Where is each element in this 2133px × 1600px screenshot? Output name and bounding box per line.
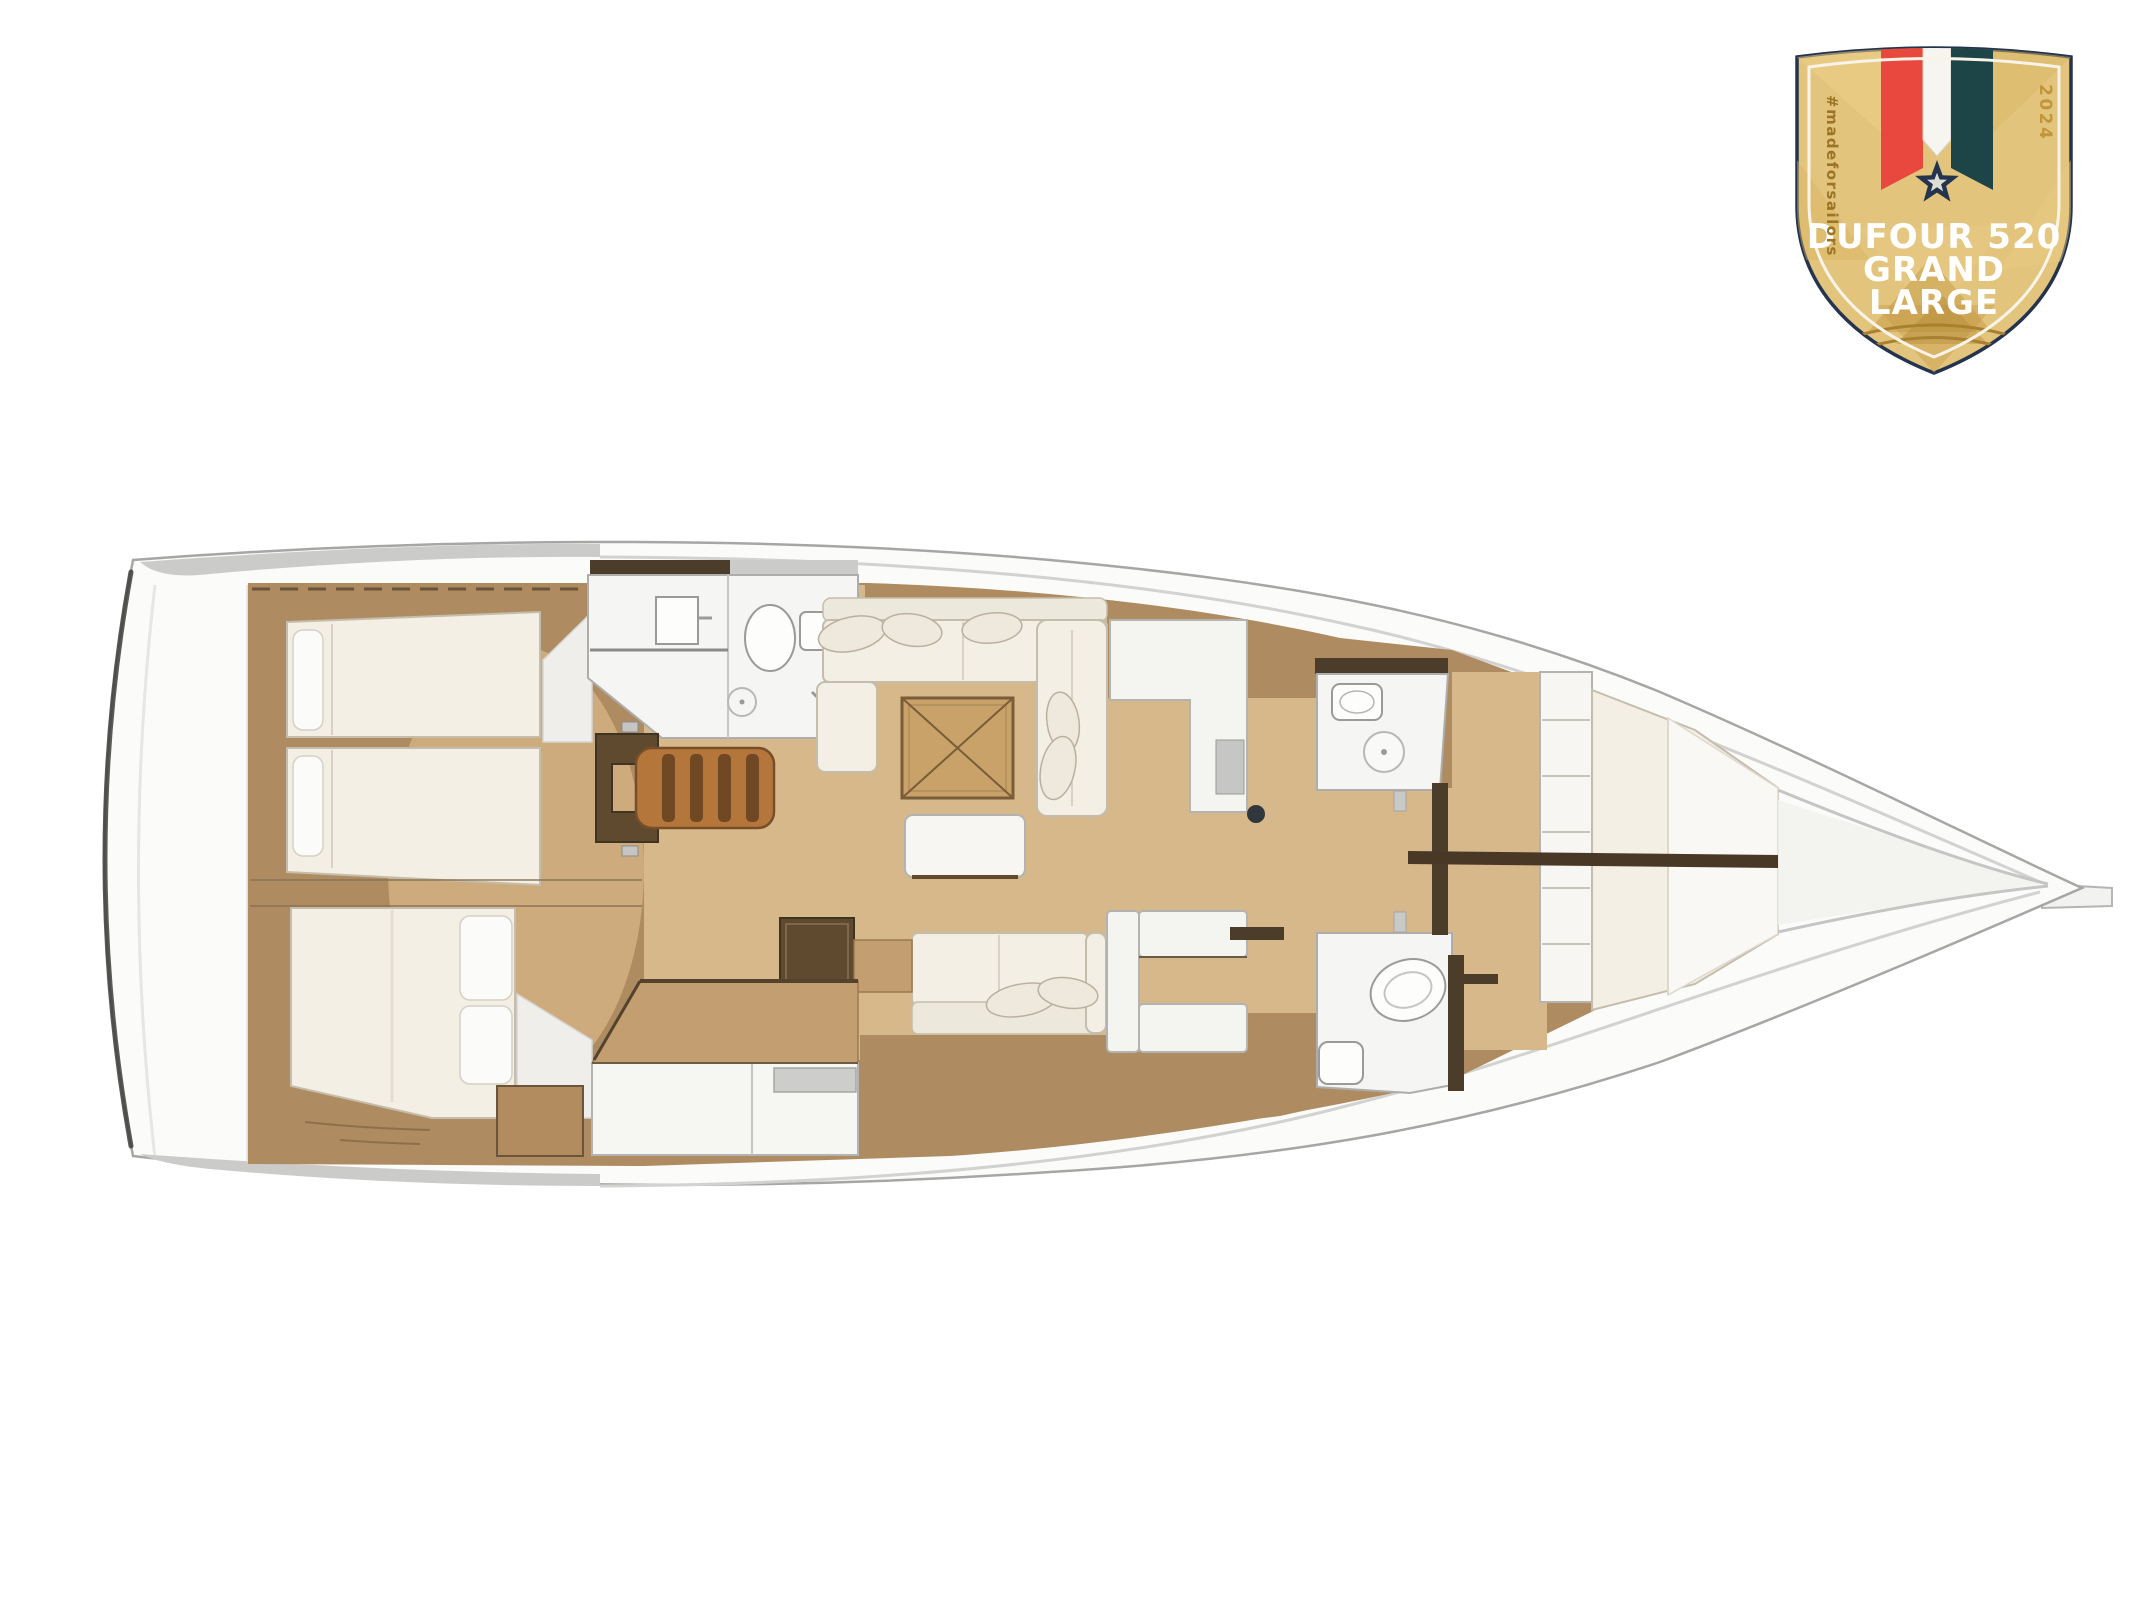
badge-hashtag-text: #madeforsailors (1823, 95, 1841, 257)
twin-bed-1-pillow (293, 630, 323, 730)
ribbon-red (1881, 42, 1923, 190)
boat-floorplan (105, 542, 2113, 1186)
corridor-wall-bar (1230, 927, 1284, 940)
twin-bed-2-pillow (293, 756, 323, 856)
galley-appliance (774, 1068, 856, 1092)
sofa-left-return (817, 682, 877, 772)
double-bed-pillow-1 (460, 916, 512, 1000)
hinge-mark (622, 846, 638, 856)
fwd-head-shower (1315, 658, 1448, 790)
twin-bed-2 (287, 748, 540, 885)
fwd-head-seat (1319, 1042, 1363, 1084)
shower-drain-dot (1381, 749, 1387, 755)
page: DUFOUR 520 GRAND LARGE #madeforsailors 2… (0, 0, 2133, 1600)
saloon-bench (905, 815, 1025, 877)
twin-bed-1 (287, 612, 540, 737)
double-bed-pillow-2 (460, 1006, 512, 1084)
headboard-shelves (1540, 672, 1592, 1002)
aft-cabin-port (252, 589, 592, 885)
wardrobe (497, 1086, 583, 1156)
stair-step (746, 754, 759, 822)
stair-step (718, 754, 731, 822)
toilet (745, 605, 795, 671)
badge-year-text: 2024 (2035, 84, 2055, 141)
stair-step (690, 754, 703, 822)
shower-wall-dark (1315, 658, 1448, 674)
mast-base (1247, 805, 1265, 823)
boat-floorplan-svg: DUFOUR 520 GRAND LARGE #madeforsailors 2… (0, 0, 2133, 1600)
ribbon-teal (1951, 42, 1993, 190)
cabin-locker-bar (1450, 974, 1498, 984)
wet-bar-bottom (1139, 1004, 1247, 1052)
sink (656, 597, 698, 644)
badge-title-line3: LARGE (1869, 283, 1999, 323)
galley-counter-small (854, 940, 912, 992)
hinge-mark (622, 722, 638, 732)
chart-panel (1216, 740, 1244, 794)
door-post (1394, 912, 1406, 932)
saloon-table (902, 698, 1013, 798)
head-wall-gray (730, 560, 858, 575)
door-post (1394, 791, 1406, 811)
stair-step (662, 754, 675, 822)
sofa-bottom-arm (1086, 933, 1106, 1033)
head-wall-dark (590, 560, 730, 575)
badge: DUFOUR 520 GRAND LARGE #madeforsailors 2… (1797, 40, 2071, 373)
shower-drain-dot (740, 700, 745, 705)
wet-bar-side (1107, 911, 1139, 1052)
